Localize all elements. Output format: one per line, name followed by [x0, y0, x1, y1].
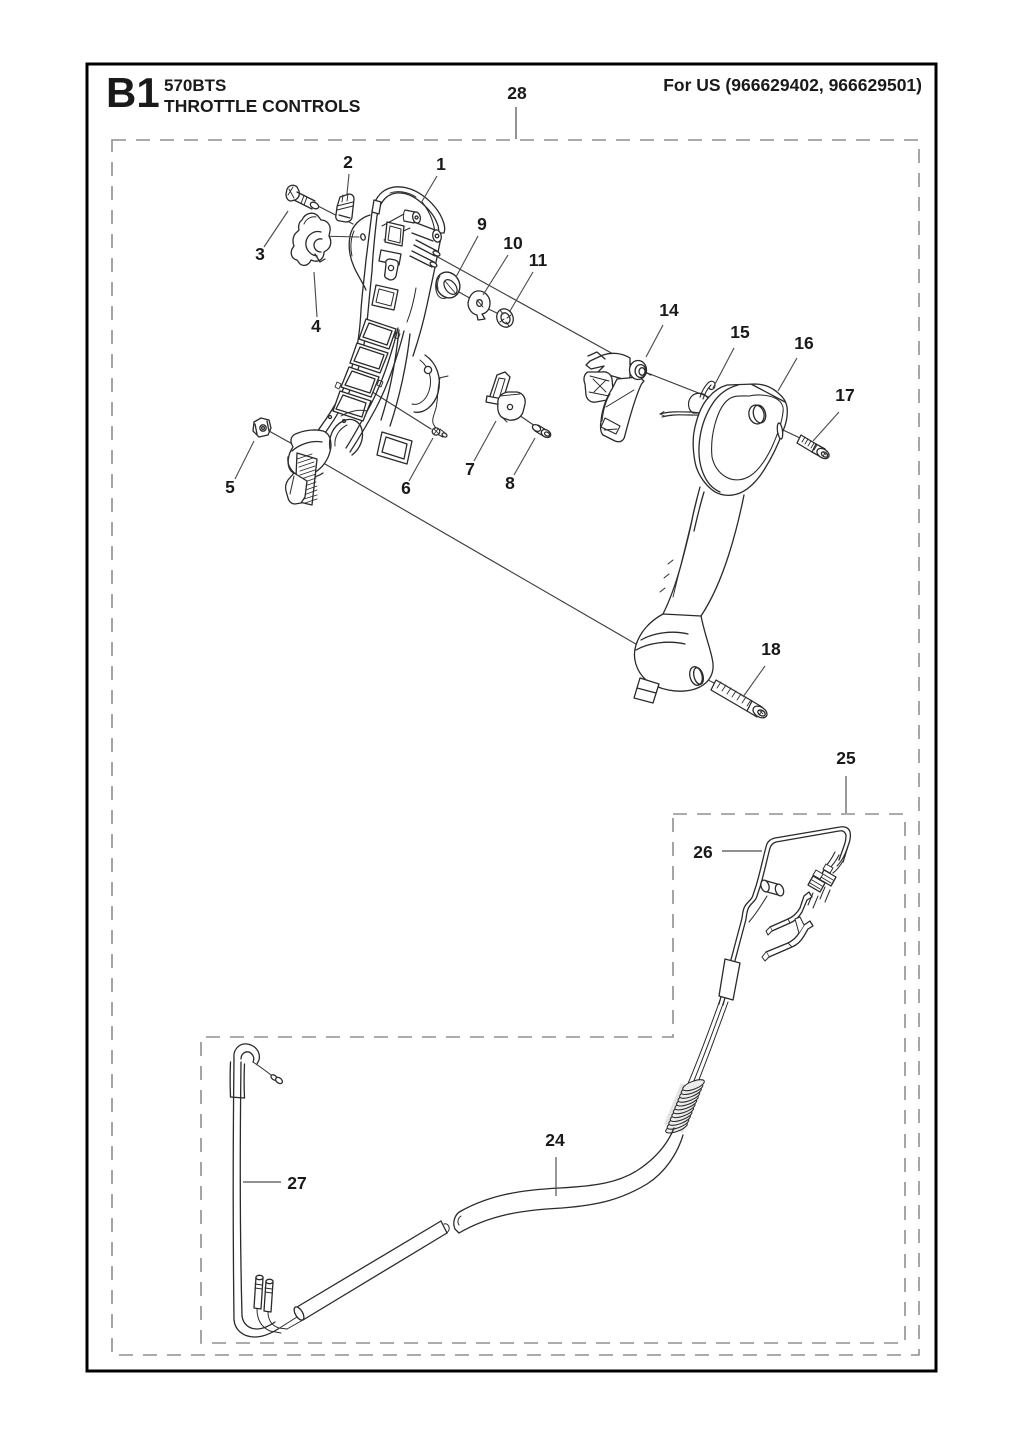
svg-text:2: 2 [343, 152, 353, 172]
svg-text:28: 28 [507, 83, 527, 103]
svg-text:4: 4 [311, 316, 321, 336]
svg-text:17: 17 [835, 385, 854, 405]
svg-text:For US (966629402, 966629501): For US (966629402, 966629501) [663, 75, 922, 95]
svg-text:14: 14 [659, 300, 679, 320]
svg-text:25: 25 [836, 748, 856, 768]
svg-text:THROTTLE CONTROLS: THROTTLE CONTROLS [164, 96, 360, 116]
svg-text:5: 5 [225, 477, 235, 497]
svg-text:1: 1 [436, 154, 446, 174]
svg-text:9: 9 [477, 214, 487, 234]
svg-text:6: 6 [401, 478, 411, 498]
svg-text:B1: B1 [106, 69, 160, 116]
svg-text:15: 15 [730, 322, 750, 342]
svg-text:18: 18 [761, 639, 781, 659]
svg-text:10: 10 [503, 233, 523, 253]
svg-text:11: 11 [529, 250, 548, 270]
svg-text:27: 27 [287, 1173, 306, 1193]
svg-text:26: 26 [693, 842, 713, 862]
svg-text:570BTS: 570BTS [164, 76, 226, 95]
svg-text:24: 24 [545, 1130, 565, 1150]
svg-text:7: 7 [465, 459, 475, 479]
svg-text:16: 16 [794, 333, 814, 353]
svg-text:3: 3 [255, 244, 265, 264]
svg-text:8: 8 [505, 473, 515, 493]
